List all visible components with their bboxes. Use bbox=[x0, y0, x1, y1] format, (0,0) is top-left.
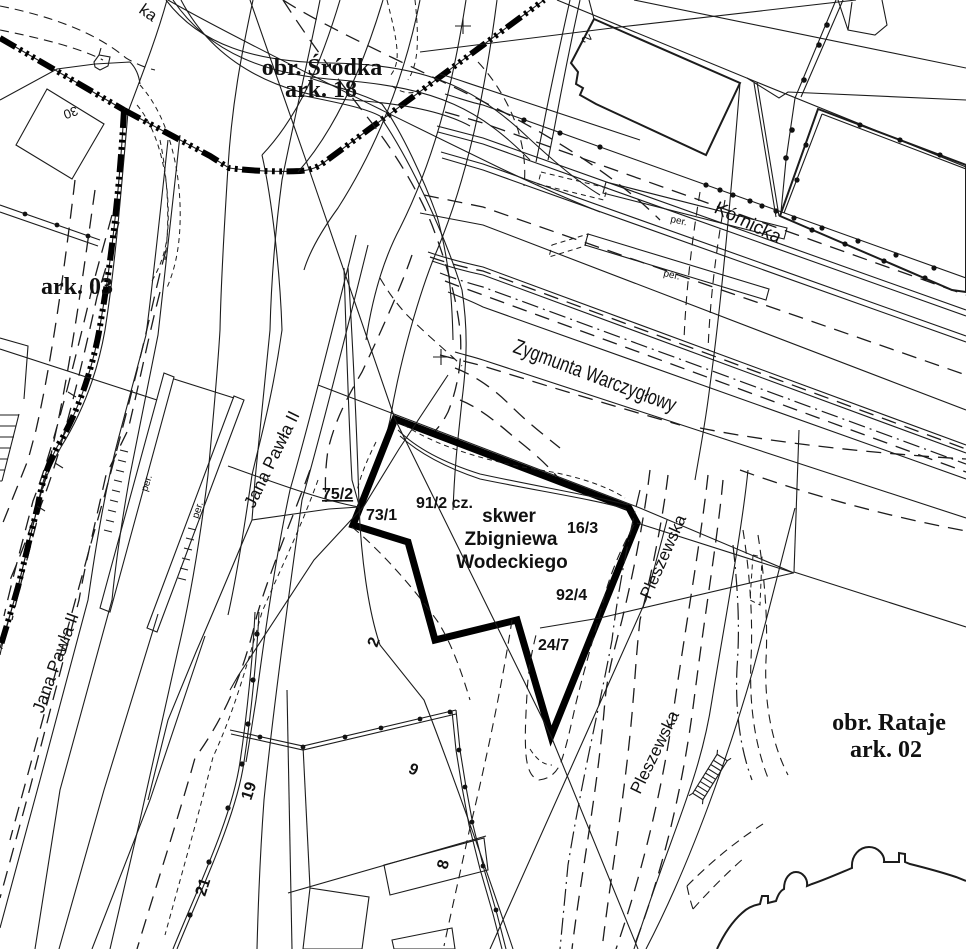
svg-text:ark. 02: ark. 02 bbox=[850, 737, 922, 763]
svg-text:ark. 18: ark. 18 bbox=[285, 77, 357, 103]
svg-text:75/2: 75/2 bbox=[322, 486, 353, 503]
svg-text:Wodeckiego: Wodeckiego bbox=[456, 552, 568, 573]
svg-text:ark. 03: ark. 03 bbox=[41, 274, 113, 300]
svg-text:16/3: 16/3 bbox=[567, 520, 598, 537]
svg-text:91/2 cz.: 91/2 cz. bbox=[416, 495, 473, 512]
svg-text:skwer: skwer bbox=[482, 506, 536, 527]
svg-text:92/4: 92/4 bbox=[556, 587, 587, 604]
svg-text:obr. Rataje: obr. Rataje bbox=[832, 710, 946, 736]
svg-text:24/7: 24/7 bbox=[538, 637, 569, 654]
svg-text:Zbigniewa: Zbigniewa bbox=[465, 529, 558, 550]
svg-text:73/1: 73/1 bbox=[366, 507, 397, 524]
